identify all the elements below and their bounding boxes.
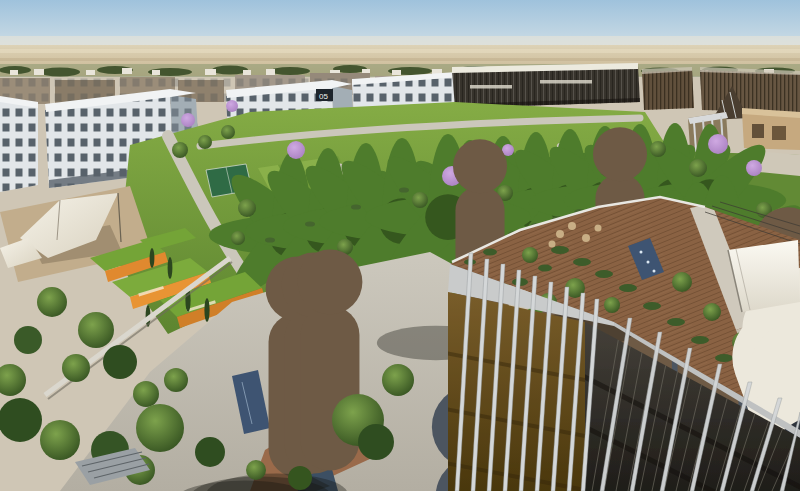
awning-canopy xyxy=(728,240,800,312)
tan-building xyxy=(742,108,800,150)
building-number-sign: 05 xyxy=(316,89,333,101)
commercial-complex-center: Long glass commercial complex with white… xyxy=(452,63,640,108)
rendering-canvas: Aerial architectural rendering of a dese… xyxy=(0,0,800,491)
aerial-rendering: Aerial architectural rendering of a dese… xyxy=(0,0,800,491)
svg-text:05: 05 xyxy=(319,92,328,101)
